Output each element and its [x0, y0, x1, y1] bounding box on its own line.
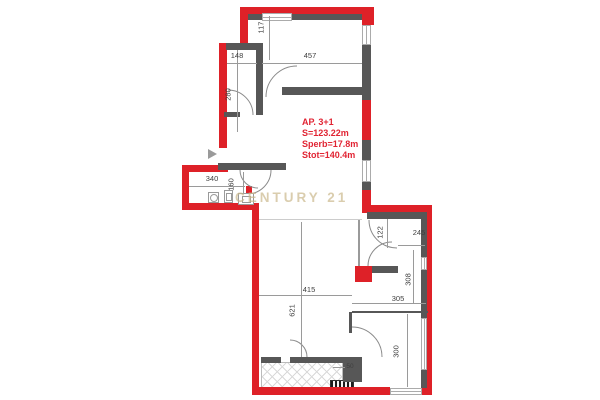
window-top — [262, 13, 292, 21]
dim-label-340: 340 — [197, 174, 227, 183]
column-shaft — [355, 266, 372, 282]
dim-label-300: 300 — [392, 340, 401, 364]
dim-label-305: 305 — [384, 294, 412, 303]
wall-right-upper-a — [362, 100, 371, 140]
dim-line — [387, 219, 388, 248]
dim-line — [398, 245, 425, 246]
partition-line — [358, 219, 360, 266]
dim-label-50: 50 — [343, 362, 357, 371]
dim-line — [269, 16, 270, 60]
floor-plan: 117 148 457 280 340 160 122 245 308 305 … — [0, 0, 600, 400]
dim-line — [259, 295, 352, 296]
wall-right-lower-dark-c — [421, 370, 427, 388]
dim-label-148: 148 — [222, 51, 252, 60]
wall-step-inner — [367, 212, 427, 219]
dim-label-117: 117 — [257, 16, 266, 40]
door-arc — [368, 242, 392, 266]
wall-top-left-drop — [240, 7, 248, 47]
entrance-arrow-icon — [208, 149, 217, 159]
dim-label-245: 245 — [405, 228, 433, 237]
wall-topright-corner — [362, 7, 374, 25]
window-right-upper-a — [362, 25, 371, 45]
beam-line — [259, 219, 362, 220]
apartment-area-total: Stot=140.4m — [302, 150, 358, 161]
wall-upperleft-room-right — [256, 43, 263, 115]
wall-stub-near-column — [372, 266, 398, 273]
apartment-area-sperb: Sperb=17.8m — [302, 139, 358, 150]
wall-balcony-top-a — [261, 357, 281, 363]
wall-right-lower-dark-a — [421, 219, 427, 257]
wall-right-upper-dark-b — [362, 140, 371, 160]
dim-label-415: 415 — [295, 285, 323, 294]
dim-line — [189, 186, 245, 187]
window-right-upper-b — [362, 160, 371, 182]
wall-mid-horizontal — [282, 87, 362, 95]
apartment-info: AP. 3+1 S=123.22m Sperb=17.8m Stot=140.4… — [302, 117, 358, 161]
dim-label-621: 621 — [288, 299, 297, 323]
washer-fixture — [208, 192, 219, 203]
dim-line — [262, 63, 362, 64]
dim-label-457: 457 — [295, 51, 325, 60]
dim-label-122: 122 — [376, 221, 385, 245]
window-right-lower-a — [421, 257, 427, 270]
dim-line — [352, 303, 426, 304]
window-right-lower-b — [421, 318, 427, 370]
dim-line — [407, 314, 408, 387]
wall-corridor-top — [218, 163, 286, 170]
wall-lower-left — [252, 205, 259, 395]
wall-right-upper-dark-c — [362, 182, 371, 190]
watermark: CENTURY 21 — [235, 190, 415, 205]
door-arc — [290, 340, 307, 357]
wall-bedroom-horizontal — [352, 311, 428, 313]
dim-line — [237, 50, 238, 132]
apartment-name: AP. 3+1 — [302, 117, 358, 128]
door-arc — [352, 327, 382, 357]
apartment-area: S=123.22m — [302, 128, 358, 139]
toilet-fixture — [224, 190, 233, 203]
wall-bottom-right-part — [422, 387, 432, 395]
wall-balcony-top-b — [290, 357, 343, 363]
wall-step — [362, 205, 432, 212]
window-bottom — [390, 388, 422, 395]
dim-line — [413, 250, 414, 303]
dim-label-280: 280 — [224, 83, 233, 107]
wall-bottom-left-part — [252, 387, 390, 395]
wall-right-upper-dark-a — [362, 45, 371, 100]
dim-label-308: 308 — [404, 268, 413, 292]
dim-line — [227, 63, 257, 64]
wall-top — [240, 7, 374, 14]
wall-bedroom-vertical — [349, 312, 352, 333]
